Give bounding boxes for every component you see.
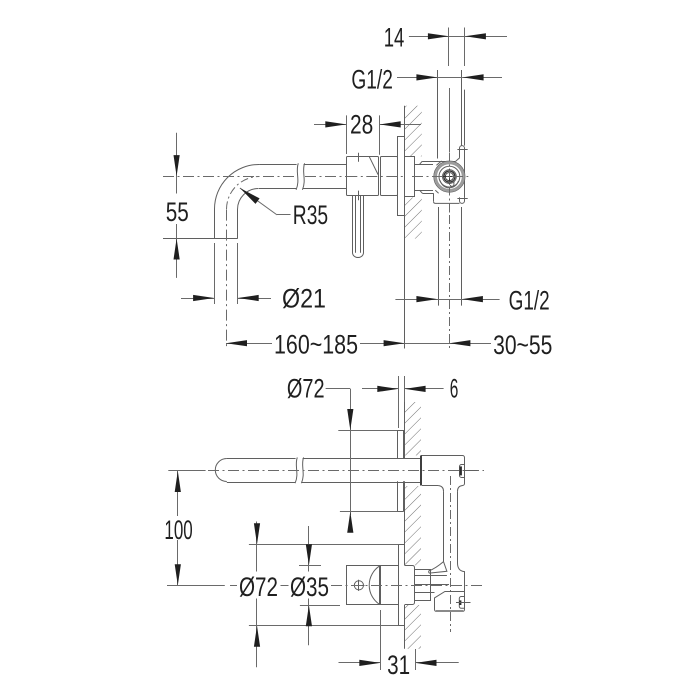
svg-text:Ø72: Ø72 bbox=[287, 373, 325, 403]
svg-text:Ø35: Ø35 bbox=[290, 572, 329, 602]
svg-text:G1/2: G1/2 bbox=[351, 64, 393, 94]
svg-text:31: 31 bbox=[387, 650, 410, 680]
svg-text:6: 6 bbox=[450, 373, 459, 403]
svg-text:30~55: 30~55 bbox=[493, 330, 552, 360]
svg-text:G1/2: G1/2 bbox=[509, 285, 550, 315]
svg-text:160~185: 160~185 bbox=[274, 330, 358, 360]
svg-text:Ø21: Ø21 bbox=[282, 284, 326, 314]
svg-text:100: 100 bbox=[164, 515, 192, 545]
svg-text:R35: R35 bbox=[293, 200, 328, 230]
svg-text:28: 28 bbox=[350, 109, 373, 139]
svg-text:Ø72: Ø72 bbox=[239, 572, 278, 602]
svg-text:55: 55 bbox=[166, 197, 189, 227]
svg-text:14: 14 bbox=[384, 23, 405, 53]
